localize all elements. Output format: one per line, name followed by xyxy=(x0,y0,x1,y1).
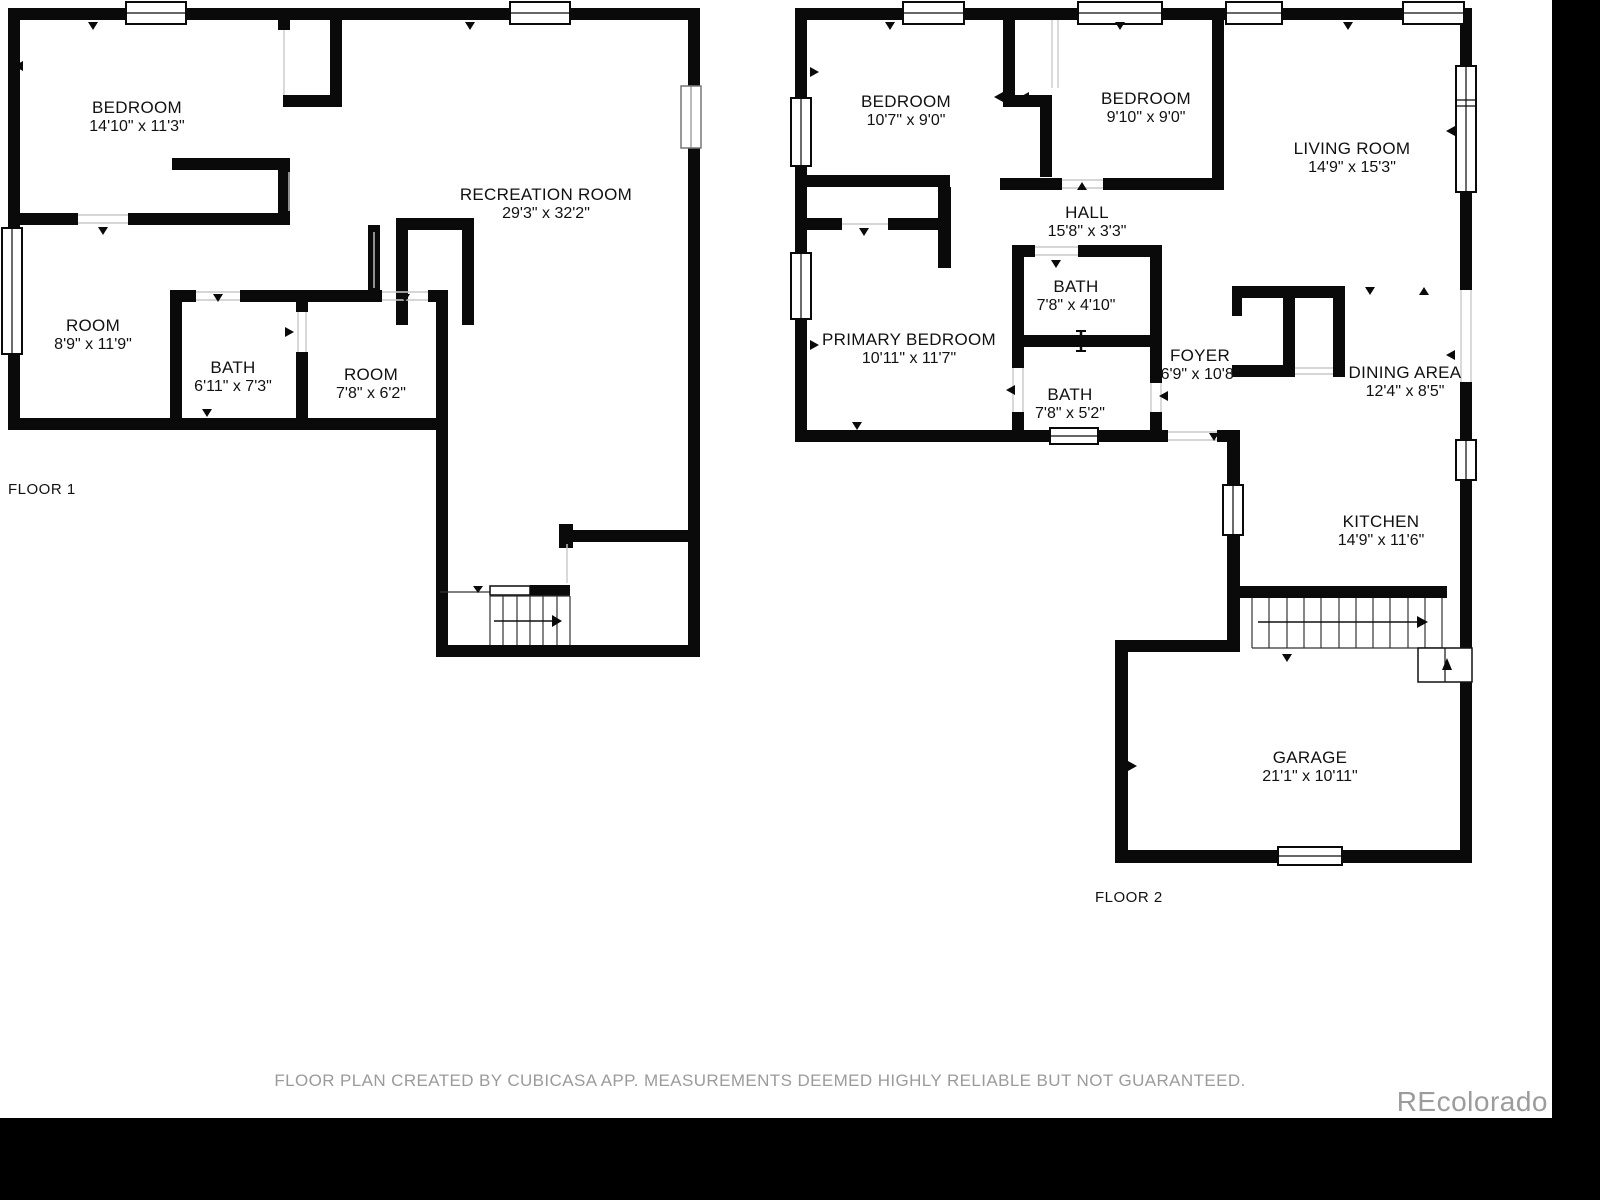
floor2-stairs xyxy=(1252,598,1472,682)
floor1-walls xyxy=(8,8,700,657)
floor2-door-markers xyxy=(810,22,1455,771)
bottom-black-band xyxy=(0,1118,1600,1200)
floor2-walls xyxy=(795,8,1472,863)
floor1-stairs xyxy=(440,585,570,645)
floorplan-drawing xyxy=(0,0,1600,1200)
right-black-band xyxy=(1552,0,1600,1200)
floor1-door-openings xyxy=(78,30,567,583)
floorplan-page: BEDROOM14'10" x 11'3"RECREATION ROOM29'3… xyxy=(0,0,1600,1200)
floor1-door-markers xyxy=(14,22,697,417)
